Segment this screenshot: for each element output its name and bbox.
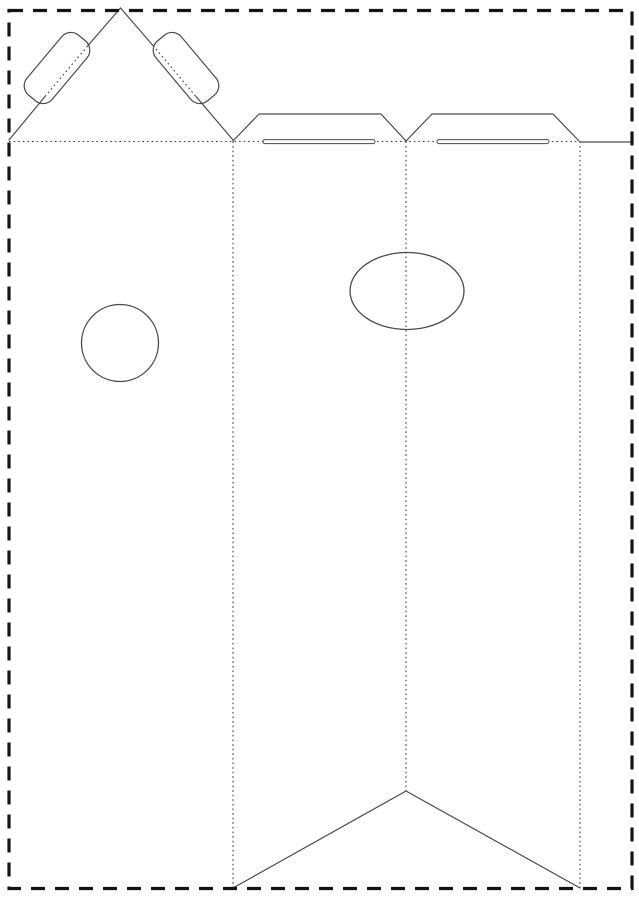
punch-hole-circle xyxy=(82,305,159,382)
dieline-drawing xyxy=(0,0,639,900)
bottom-chevron-cut-line xyxy=(233,791,580,888)
handle-slot-left xyxy=(263,140,375,144)
right-tab-fold-fold-line xyxy=(153,46,196,97)
template-page xyxy=(0,0,639,900)
roof-tab-left xyxy=(19,28,94,109)
hang-hole-ellipse xyxy=(350,253,464,330)
left-tab-fold-fold-line xyxy=(45,46,88,97)
top-flap-right-cut-line xyxy=(406,114,579,141)
roof-left-peak-cut-line xyxy=(88,8,121,46)
top-flap-left-cut-line xyxy=(233,114,406,141)
roof-tab-right xyxy=(148,28,223,109)
roof-right-peak-cut-line xyxy=(121,8,154,46)
handle-slot-right xyxy=(437,140,549,144)
